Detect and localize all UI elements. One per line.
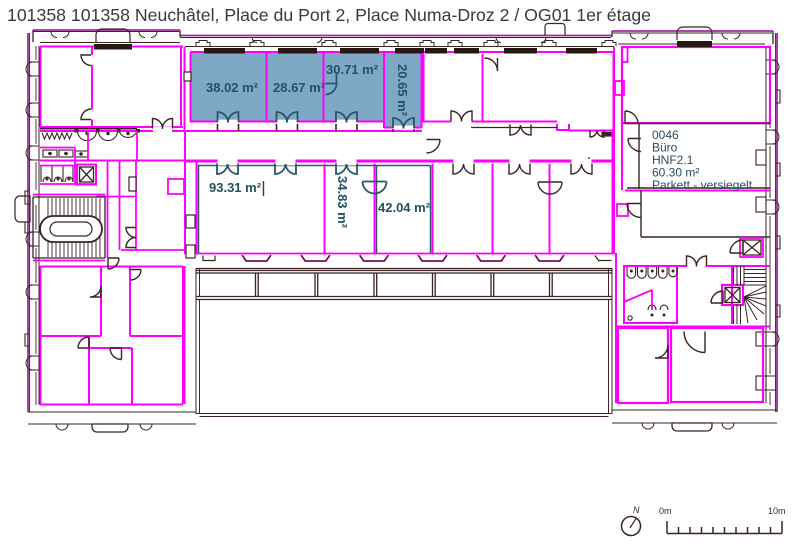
- svg-text:38.02 m²: 38.02 m²: [206, 80, 259, 95]
- svg-text:Parkett - versiegelt: Parkett - versiegelt: [652, 178, 753, 192]
- svg-text:34.83 m²: 34.83 m²: [335, 176, 350, 229]
- svg-text:0m: 0m: [659, 506, 672, 516]
- svg-text:101358 101358 Neuchâtel, Place: 101358 101358 Neuchâtel, Place du Port 2…: [7, 5, 651, 25]
- svg-text:10m: 10m: [768, 506, 786, 516]
- svg-text:20.65 m²: 20.65 m²: [395, 64, 410, 117]
- svg-text:28.67 m²: 28.67 m²: [273, 80, 326, 95]
- svg-text:30.71 m²: 30.71 m²: [326, 62, 379, 77]
- svg-text:N: N: [633, 505, 640, 515]
- svg-text:42.04 m²: 42.04 m²: [378, 200, 431, 215]
- svg-text:93.31 m²: 93.31 m²: [209, 180, 262, 195]
